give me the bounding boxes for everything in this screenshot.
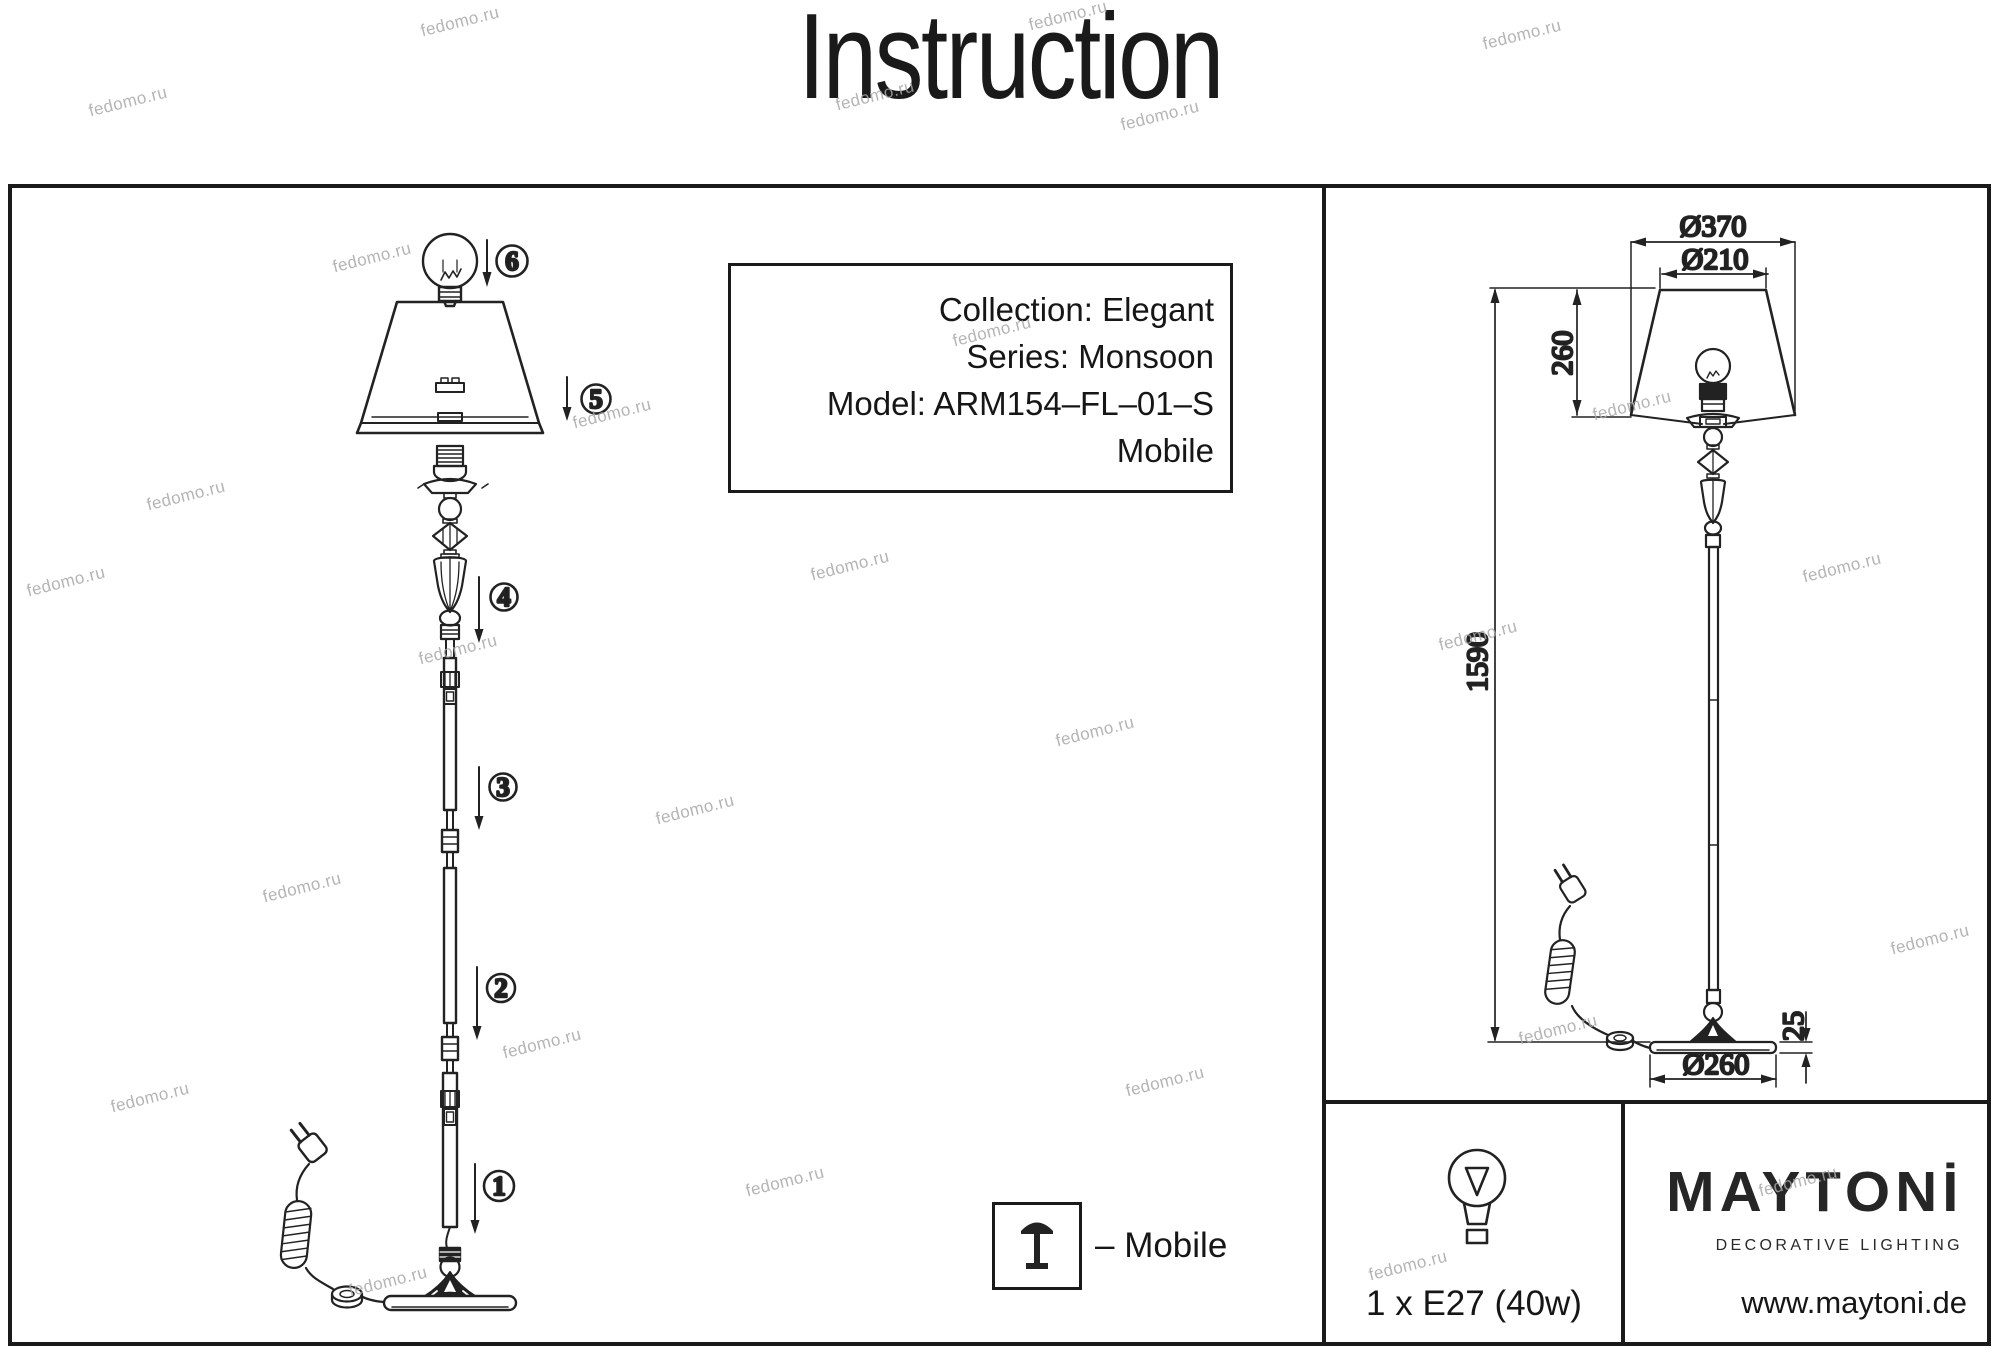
- step-3-marker: 3: [490, 772, 517, 802]
- dim-shade-top-diameter: Ø210: [1682, 243, 1749, 276]
- step-1-arrow: [471, 1164, 480, 1234]
- step-2-marker: 2: [487, 973, 515, 1003]
- step-4-marker: 4: [491, 582, 518, 612]
- step-2-arrow: [473, 967, 482, 1040]
- bulb-drawing: [423, 234, 477, 306]
- step-6-marker: 6: [497, 246, 528, 277]
- dimension-lines: [1488, 238, 1812, 1088]
- step-3-arrow: [475, 767, 484, 830]
- dim-bulb-drawing: [1696, 349, 1730, 411]
- dim-base-diameter: Ø260: [1683, 1048, 1750, 1081]
- mobile-legend-box: [992, 1202, 1082, 1290]
- step-6-number: 6: [505, 246, 519, 276]
- step-3-number: 3: [496, 772, 510, 802]
- dimension-view-drawing: Ø370 Ø210 260 1590 25 Ø260: [1324, 184, 1992, 1103]
- bulb-spec-icon: [1437, 1138, 1517, 1258]
- watermark: fedomo.ru: [87, 83, 170, 122]
- step-1-number: 1: [492, 1171, 506, 1201]
- mobile-legend-label: – Mobile: [1095, 1226, 1227, 1266]
- floor-lamp-icon: [995, 1205, 1079, 1287]
- dim-shade-height: 260: [1546, 331, 1579, 376]
- shade-drawing: [357, 302, 543, 433]
- step-4-number: 4: [497, 582, 511, 612]
- dim-shade-bottom-diameter: Ø370: [1680, 210, 1747, 243]
- dim-column-drawing: [1650, 414, 1776, 1053]
- step-6-arrow: [483, 240, 492, 287]
- brand-cell: MAYTONİ DECORATIVE LIGHTING www.maytoni.…: [1624, 1103, 1992, 1346]
- brand-website: www.maytoni.de: [1741, 1285, 1967, 1321]
- bulb-spec-label: 1 x E27 (40w): [1326, 1284, 1622, 1324]
- dim-base-thickness: 25: [1777, 1011, 1810, 1041]
- step-1-marker: 1: [484, 1171, 514, 1201]
- pole-sections-drawing: [441, 658, 459, 1227]
- step-2-number: 2: [494, 973, 508, 1003]
- brand-tagline: DECORATIVE LIGHTING: [1716, 1237, 1963, 1255]
- exploded-view-drawing: 6 5: [8, 184, 1322, 1346]
